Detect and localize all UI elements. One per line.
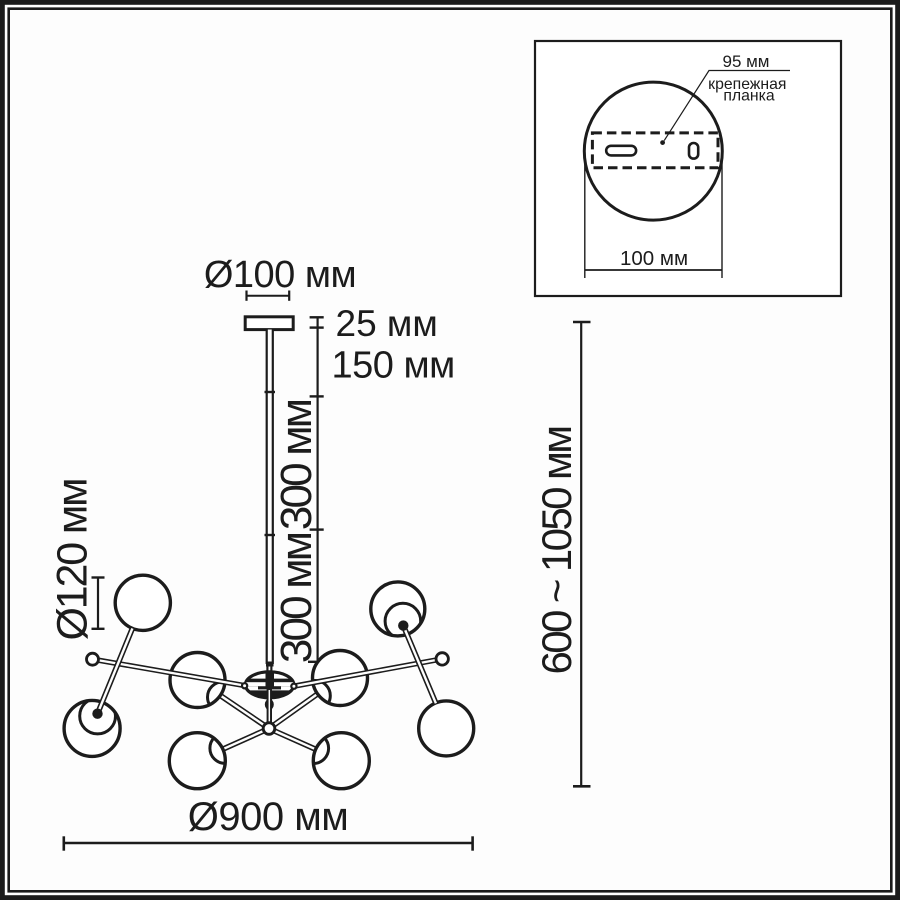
svg-text:Ø100 мм: Ø100 мм <box>204 254 356 296</box>
svg-text:Ø900 мм: Ø900 мм <box>188 795 348 839</box>
svg-text:100 мм: 100 мм <box>620 247 688 270</box>
svg-text:300 мм: 300 мм <box>272 400 321 530</box>
svg-text:600 ~ 1050 мм: 600 ~ 1050 мм <box>533 428 580 675</box>
svg-text:300 мм: 300 мм <box>272 533 321 663</box>
svg-text:25 мм: 25 мм <box>336 303 438 344</box>
svg-text:95 мм: 95 мм <box>722 52 769 71</box>
svg-text:150 мм: 150 мм <box>332 345 455 387</box>
svg-text:Ø120 мм: Ø120 мм <box>49 480 97 641</box>
svg-text:планка: планка <box>723 88 775 105</box>
